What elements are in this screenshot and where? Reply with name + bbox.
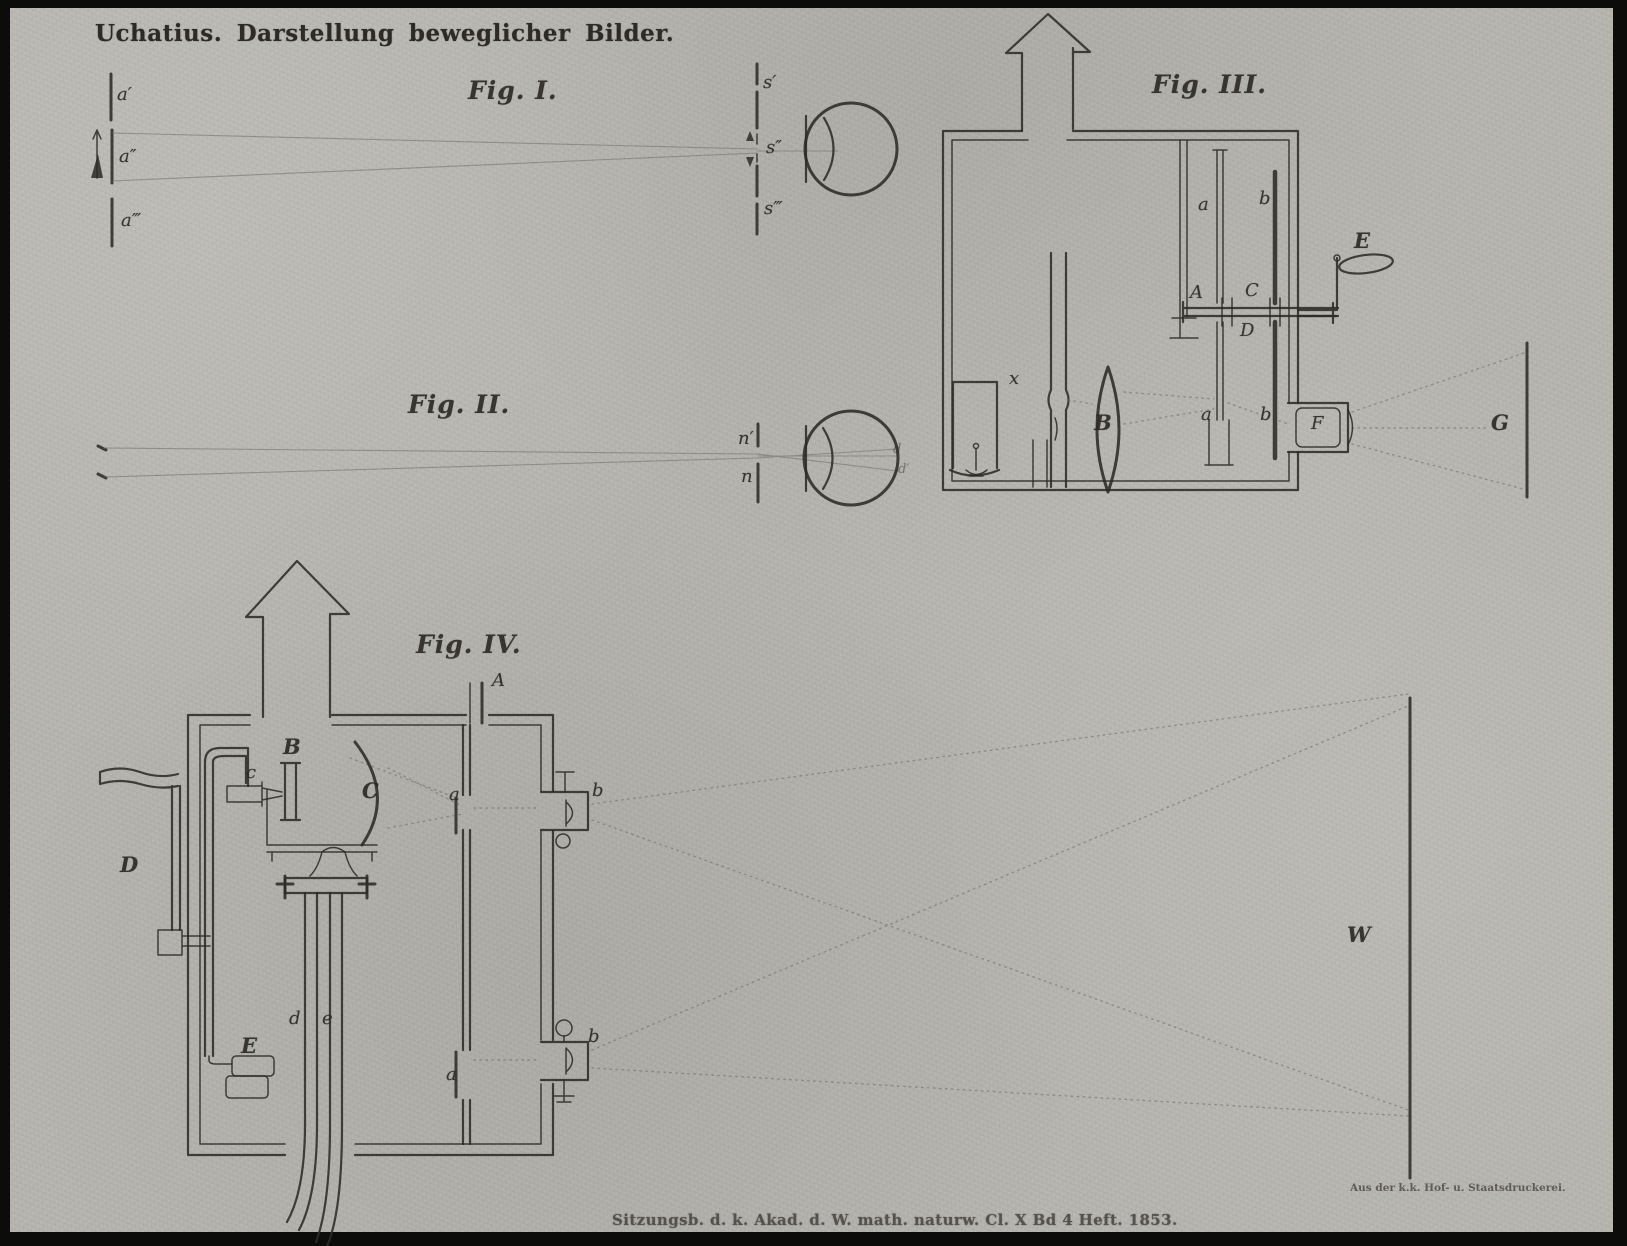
fig3-lamp-box — [950, 382, 999, 476]
fig4-valve-bar — [285, 878, 367, 893]
fig2-title: Fig. II. — [408, 390, 510, 419]
fig4-label-screen: W — [1347, 922, 1371, 947]
fig4-bellows-top — [232, 1056, 274, 1076]
fig3-label-lamp-box: x — [1009, 368, 1019, 389]
fig2-label-d2: d′ — [898, 462, 909, 477]
fig3-label-shutter-upper: b — [1259, 188, 1271, 209]
fig2-object-ticks — [98, 446, 106, 478]
fig4-label-band-lower: a — [446, 1064, 457, 1085]
fig1-sight-rays — [112, 133, 838, 181]
fig1-aperture-arrow-up — [746, 131, 754, 141]
fig1-eye — [805, 103, 897, 195]
fig2-sight-rays — [104, 448, 898, 477]
fig1-label-s3: s‴ — [764, 198, 783, 219]
fig4-lime-cylinder — [281, 763, 300, 820]
fig4-prism-housing-lower — [541, 1042, 588, 1080]
fig2-label-d1: d — [893, 442, 901, 457]
fig4-label-band-upper: a — [449, 784, 460, 805]
fig4-label-prism-lower: b — [588, 1026, 600, 1047]
fig4-label-bellows: E — [241, 1033, 257, 1058]
fig4-burner-jet — [227, 782, 282, 806]
fig1-label-a3: a‴ — [121, 210, 141, 231]
fig1-label-s1: s′ — [763, 72, 776, 93]
fig4-platform — [267, 790, 377, 861]
fig4-label-prism-upper: b — [592, 780, 604, 801]
fig4-tube-e — [316, 893, 342, 1246]
fig3-label-band-lower: a — [1201, 404, 1212, 425]
fig1-title: Fig. I. — [468, 76, 558, 105]
fig1-label-a2: a″ — [119, 146, 136, 167]
fig2-eye-lens — [823, 428, 833, 489]
fig4-chimney-arrow — [246, 561, 349, 717]
footer-caption: Sitzungsb. d. k. Akad. d. W. math. natur… — [612, 1211, 1178, 1229]
fig4-label-jet: c — [246, 762, 256, 783]
fig3-label-condenser: B — [1094, 410, 1112, 435]
fig3-crossbar — [1183, 302, 1338, 322]
fig4-label-tube-e: e — [322, 1008, 333, 1029]
fig2-eye — [804, 411, 898, 505]
fig1-label-a1: a′ — [117, 84, 132, 105]
fig3-label-objective: F — [1311, 413, 1324, 434]
fig4-label-slit: A — [492, 670, 505, 691]
fig4-projection-rays — [592, 694, 1408, 1116]
fig3-label-carrier: C — [1245, 280, 1259, 301]
fig1-eye-lens — [824, 118, 834, 180]
fig4-partition — [463, 725, 470, 1144]
fig4-label-tube-d: d — [289, 1008, 301, 1029]
fig3-chimney-arrow — [1006, 14, 1090, 131]
fig3-label-screen: G — [1491, 410, 1509, 435]
page-title: Uchatius. Darstellung beweglicher Bilder… — [95, 20, 674, 47]
fig4-bellows-bottom — [226, 1076, 268, 1098]
printer-credit: Aus der k.k. Hof- u. Staatsdruckerei. — [1350, 1182, 1566, 1194]
fig4-drawing — [100, 561, 1410, 1246]
fig4-crank-foot — [158, 930, 210, 955]
fig2-drawing — [98, 411, 898, 505]
fig3-label-frame: A — [1190, 282, 1203, 303]
scanned-plate: Uchatius. Darstellung beweglicher Bilder… — [0, 0, 1627, 1246]
plate-line-art — [0, 0, 1627, 1246]
fig4-bellows-pipe — [209, 1056, 232, 1064]
fig1-object-ticks — [111, 74, 112, 246]
fig2-label-n2: n — [741, 466, 753, 487]
fig3-crank-handle — [1338, 252, 1394, 276]
fig3-crank-shaft — [1298, 258, 1337, 323]
fig4-label-reflector: C — [362, 778, 379, 803]
fig3-label-guide: D — [1240, 320, 1254, 341]
fig3-burner — [1033, 418, 1057, 487]
fig3-label-crank: E — [1354, 228, 1370, 253]
fig4-thumbscrew-upper — [556, 834, 570, 848]
fig4-stopcocks — [277, 876, 375, 898]
fig4-title: Fig. IV. — [416, 630, 522, 659]
fig3-label-band-upper: a — [1198, 194, 1209, 215]
fig4-label-lime: B — [283, 734, 301, 759]
fig1-aperture-arrow-down — [746, 157, 754, 167]
fig4-thumbscrew-lower — [556, 1020, 572, 1036]
fig1-arrow-object-wedge — [91, 154, 103, 178]
fig3-title: Fig. III. — [1152, 70, 1267, 99]
fig4-tube-d — [287, 893, 317, 1230]
fig3-label-shutter-lower: b — [1260, 404, 1272, 425]
fig1-label-s2: s″ — [766, 137, 782, 158]
fig3-glass-chimney — [1049, 253, 1069, 487]
fig3-candle — [966, 449, 987, 476]
fig4-prism-lower-detail — [554, 1048, 574, 1102]
fig4-prism-upper-detail — [556, 772, 574, 826]
fig4-crank-handle — [100, 769, 180, 931]
fig3-candle-flame — [974, 444, 979, 449]
fig4-label-crank: D — [120, 852, 138, 877]
fig2-label-n1: n′ — [738, 428, 754, 449]
fig4-prism-housing-upper — [541, 792, 588, 830]
